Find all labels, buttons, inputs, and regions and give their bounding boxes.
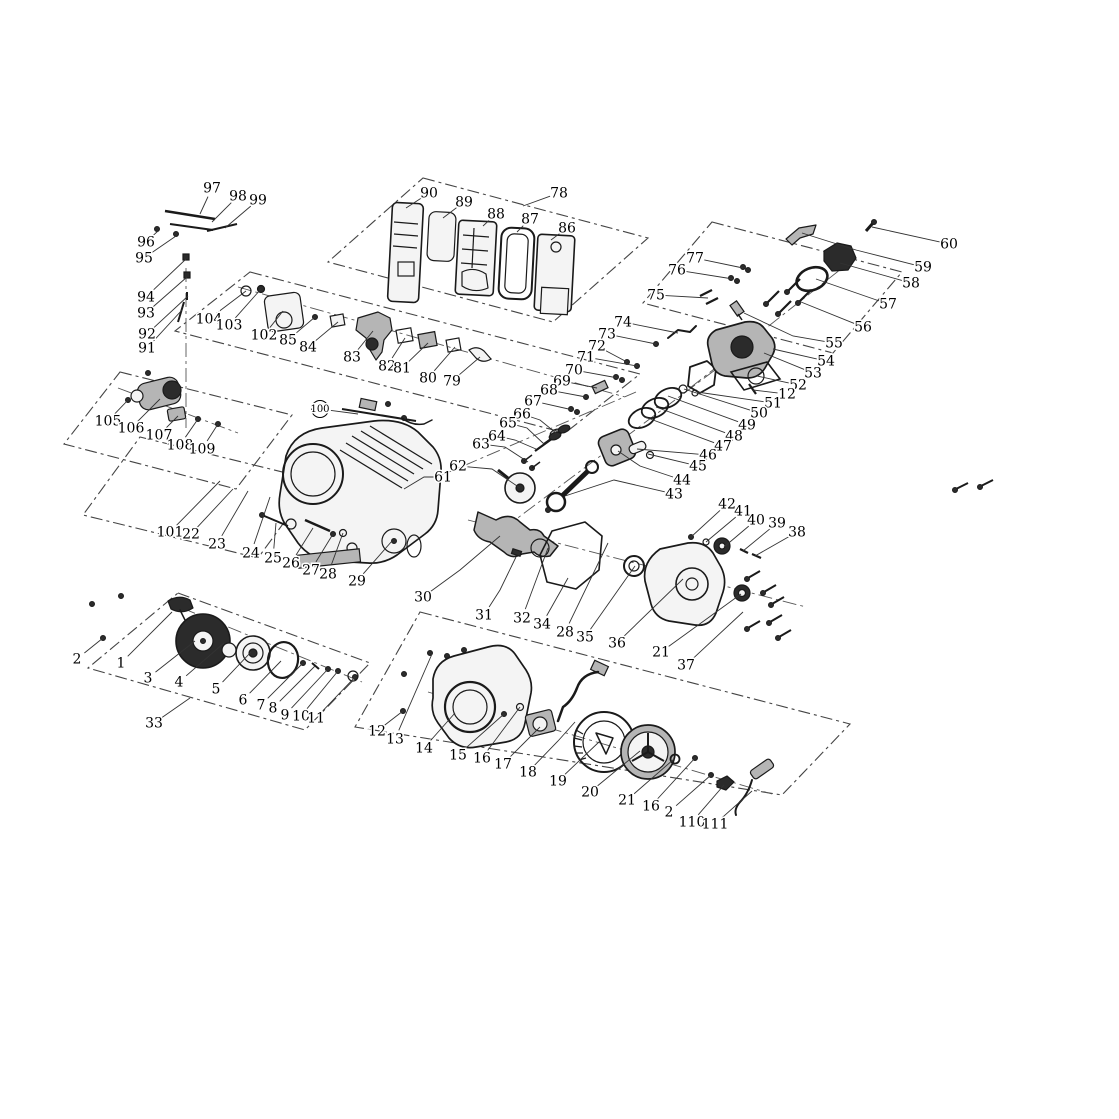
leader-19-109 [565,741,600,774]
leader-49-55 [668,396,738,422]
stator-fin2 [574,738,582,740]
leader-71-31 [595,359,637,366]
callout-56-47: 56 [854,320,872,336]
callout-26-77: 26 [282,556,300,572]
stator-inner [583,721,625,763]
loose-bolt-a-head [952,487,957,492]
loose-bolt-b [981,480,993,486]
leader-77-25 [704,260,743,268]
callout-17-107: 17 [494,757,512,773]
leader-12-52 [753,390,778,393]
callout-43-61: 43 [665,487,683,503]
ring-50a [679,385,687,393]
callout-89-20: 89 [455,195,473,211]
callout-40-64: 40 [747,513,765,529]
callout-109-71: 109 [189,442,216,458]
leader-108-70 [185,419,198,437]
leader-22-73 [197,489,233,527]
loose-bolt-a [956,483,968,489]
callout-78-24: 78 [550,186,568,202]
callout-93-6: 93 [137,306,155,322]
engine-block [279,420,441,563]
screw-96 [154,226,159,231]
leader-68-34 [558,392,586,397]
callout-64-38: 64 [488,429,506,445]
pawl-4 [222,643,236,657]
callout-94-5: 94 [137,290,155,306]
callout-100-42: 100 [310,404,329,415]
callout-16-106: 16 [473,751,491,767]
callout-14-104: 14 [415,741,433,757]
callout-2-113: 2 [665,805,674,821]
leader-99-2 [225,206,251,228]
callout-19-109: 19 [549,774,567,790]
cover-bolt-e-head [766,620,771,625]
piston-pin-hole [611,445,621,455]
connecting-rod-43 [562,471,588,496]
callout-34-84: 34 [533,617,551,633]
leader-64-38 [506,438,536,449]
leader-31-82 [489,557,516,607]
leader-34-84 [547,578,568,616]
cover-bolt-f-head [775,635,780,640]
callout-68-34: 68 [540,383,558,399]
leader-35-86 [590,566,635,629]
callout-60-43: 60 [940,237,958,253]
rope-guide-97 [165,211,215,219]
callout-30-81: 30 [414,590,432,606]
leader-12-102 [385,711,403,725]
callout-61-41: 61 [434,470,452,486]
leader-7-96 [268,663,303,698]
head-bolt-56b [779,301,791,313]
bolt-60-head [871,219,876,224]
leader-23-74 [222,491,248,536]
callout-111-115: 111 [702,817,729,833]
callout-98-1: 98 [229,189,247,205]
leader-94-5 [153,259,186,290]
air-cover-90 [387,202,423,302]
callout-87-22: 87 [521,212,539,228]
leader-76-26 [686,272,733,279]
loose-dot-a [89,601,94,606]
leader-92-7 [154,296,188,328]
callout-63-39: 63 [472,437,490,453]
oil-slinger-hub [391,538,396,543]
governor-dot-a [385,401,390,406]
callout-102-11: 102 [251,328,278,344]
callout-84-13: 84 [299,340,317,356]
callout-33-101: 33 [145,716,163,732]
callout-88-21: 88 [487,207,505,223]
callout-28-79: 28 [319,567,337,583]
stator-fin1 [576,730,583,734]
recoil-center [200,638,205,643]
callout-1-91: 1 [117,656,126,672]
callout-106-68: 106 [118,421,145,437]
filter-housing-88 [455,220,497,296]
leader-101-72 [177,481,220,525]
callout-9-98: 9 [281,708,290,724]
callout-90-19: 90 [420,186,438,202]
breather-tube-79 [469,348,491,362]
leader-39-65 [743,529,770,551]
rocker-cover-58 [824,243,856,271]
leader-78-24 [523,196,550,206]
nut-76b [734,278,739,283]
callout-31-82: 31 [475,608,493,624]
callout-58-45: 58 [902,276,920,292]
bolt-105b [145,370,150,375]
callout-25-76: 25 [264,551,282,567]
screw-77a [740,264,745,269]
rod-98 [170,224,213,230]
cover-bolt-e [770,615,782,622]
callout-7-96: 7 [257,698,266,714]
leader-11-100 [323,677,355,711]
leader-13-103 [399,654,432,730]
callout-81-16: 81 [393,361,411,377]
leader-33-101 [162,698,190,718]
callout-29-80: 29 [348,574,366,590]
callout-13-103: 13 [386,732,404,748]
head-bolt-56a [767,291,779,303]
leader-25-76 [274,523,276,549]
callout-5-94: 5 [212,682,221,698]
callout-21-88: 21 [652,645,670,661]
stud-75a [700,290,712,296]
breather-pipe-59 [786,225,816,245]
leader-95-4 [152,236,176,253]
carburetor-83 [356,312,392,360]
bolt-60 [866,223,873,231]
callout-27-78: 27 [302,563,320,579]
head-bolt-56d-head [795,300,800,305]
callout-15-105: 15 [449,748,467,764]
callout-32-83: 32 [513,611,531,627]
callout-45-59: 45 [689,459,707,475]
leader-1-91 [128,612,172,656]
leader-24-75 [254,497,270,544]
cover-bolt-a [748,571,760,578]
coil-core [533,717,547,731]
callout-6-95: 6 [239,693,248,709]
leader-97-0 [200,197,208,214]
callout-36-87: 36 [608,636,626,652]
leader-38-66 [755,537,789,556]
leader-67-35 [542,403,573,410]
leader-40-64 [724,526,749,547]
crankcase-cover-36 [645,543,725,626]
leader-105-67 [115,400,128,414]
head-chamber [731,336,753,358]
leader-57-46 [816,279,879,301]
keeper-67b [574,409,579,414]
insulator-81 [418,332,437,349]
leader-54-49 [773,349,817,359]
plug-wrench-111 [749,758,774,780]
diagram-canvas: 9798999695949392911041031028584838281807… [0,0,1119,1119]
leader-10-99 [307,671,338,709]
parts-artwork-layer [89,202,993,815]
stator-center [596,733,613,754]
screw-95 [173,231,178,236]
callout-86-23: 86 [558,221,576,237]
leader-80-17 [434,347,455,371]
callout-103-10: 103 [216,318,243,334]
rod-99 [207,224,237,231]
leader-48-56 [656,407,725,433]
leader-72-30 [605,350,627,362]
cover-bolt-b [764,585,776,592]
callout-83-14: 83 [343,350,361,366]
starter-pinion [131,390,143,402]
callout-4-93: 4 [175,675,184,691]
head-bolt-56c-head [784,289,789,294]
carb-bowl [366,338,378,350]
callout-8-97: 8 [269,701,278,717]
spacer-84 [330,314,345,327]
gasket-82 [396,328,413,343]
callout-91-8: 91 [138,341,156,357]
bolt-38 [752,554,761,558]
loose-bolt-b-head [977,484,982,489]
callout-39-65: 39 [768,516,786,532]
housing-gasket-87 [498,227,535,300]
callout-57-46: 57 [879,297,897,313]
solenoid-107 [167,407,186,422]
tappet-63b-stem [532,462,540,468]
leader-56-47 [801,302,854,323]
back-plate-box [540,287,568,314]
leader-30-81 [431,536,500,591]
leader-84-13 [315,322,338,341]
cover-bolt-c-head [768,602,773,607]
callout-18-108: 18 [519,765,537,781]
callout-77-25: 77 [686,251,704,267]
callout-23-74: 23 [208,537,226,553]
callout-74-28: 74 [614,315,632,331]
leader-60-43 [872,227,940,242]
cover-bolt-d-head [744,626,749,631]
rod-cap-bolt [545,507,550,512]
retainer-70b [619,377,624,382]
valve-64 [535,438,553,451]
spiral-spring-6 [265,640,301,681]
callout-22-73: 22 [182,527,200,543]
leader-2-113 [676,775,711,806]
leader-50-54 [684,389,750,410]
callout-37-89: 37 [677,658,695,674]
callout-28-85: 28 [556,625,574,641]
callout-16-112: 16 [642,799,660,815]
callout-96-3: 96 [137,235,155,251]
bearing-35-inner [629,561,639,571]
callout-20-110: 20 [581,785,599,801]
leader-82-15 [392,338,405,358]
leader-81-16 [409,343,428,361]
leader-111-115 [722,791,752,818]
recoil-starter-group-boundary [88,593,370,730]
callout-97-0: 97 [203,181,221,197]
head-bolt-56a-head [763,301,768,306]
callout-95-4: 95 [135,251,153,267]
callout-12-102: 12 [368,724,386,740]
callout-38-66: 38 [788,525,806,541]
filter-element-89 [427,211,457,261]
cover-bolt-a-head [744,576,749,581]
callout-59-44: 59 [914,260,932,276]
governor-bracket [359,398,377,410]
callout-75-27: 75 [647,288,665,304]
housing-gasket-87-inner [504,233,528,293]
leader-93-6 [153,277,187,307]
leader-73-29 [616,336,656,344]
leader-42-62 [691,510,720,537]
callout-101-72: 101 [157,525,184,541]
leader-32-83 [525,548,548,609]
cover-bolt-b-head [760,590,765,595]
leader-47-57 [645,417,714,443]
leader-45-59 [648,454,689,464]
leader-43-61 [565,480,665,496]
head-bolt-56b-head [775,311,780,316]
callout-85-12: 85 [279,333,297,349]
leader-98-1 [212,203,231,222]
leader-74-28 [632,324,678,333]
leader-103-10 [235,289,261,318]
leader-59-44 [802,233,914,265]
callout-80-17: 80 [419,371,437,387]
cover-bolt-c [772,597,784,604]
callout-11-100: 11 [307,711,325,727]
leader-9-98 [291,669,328,708]
callout-3-92: 3 [144,671,153,687]
bolt-13c [461,647,466,652]
cover-bolt-d [748,621,760,628]
governor-gear-hub [719,543,725,549]
spark-plug-55 [730,301,744,316]
callout-76-26: 76 [668,263,686,279]
loose-dot-b [118,593,123,598]
exploded-parts-diagram: 9798999695949392911041031028584838281807… [0,0,1119,1119]
leader-8-97 [280,666,315,701]
leader-110-114 [698,785,724,815]
bearing-35 [624,556,644,576]
gasket-80 [446,338,461,352]
loose-dot-c [401,671,406,676]
cover-bolt-f [779,630,791,637]
leader-109-71 [207,424,218,441]
stud-12 [749,384,756,394]
callout-21-111: 21 [618,793,636,809]
screw-77b [745,267,750,272]
leader-2-90 [84,638,103,653]
leader-28-85 [569,543,608,623]
stud-75b [706,298,718,304]
callout-79-18: 79 [443,374,461,390]
starter-cap [163,381,181,399]
callout-55-48: 55 [825,336,843,352]
leader-70-32 [583,372,618,378]
piston-ring-47 [626,404,659,432]
callout-24-75: 24 [242,546,260,562]
callout-2-90: 2 [73,652,82,668]
callout-99-2: 99 [249,193,267,209]
leader-79-18 [459,357,480,375]
leader-58-45 [840,263,902,280]
callout-35-86: 35 [576,630,594,646]
